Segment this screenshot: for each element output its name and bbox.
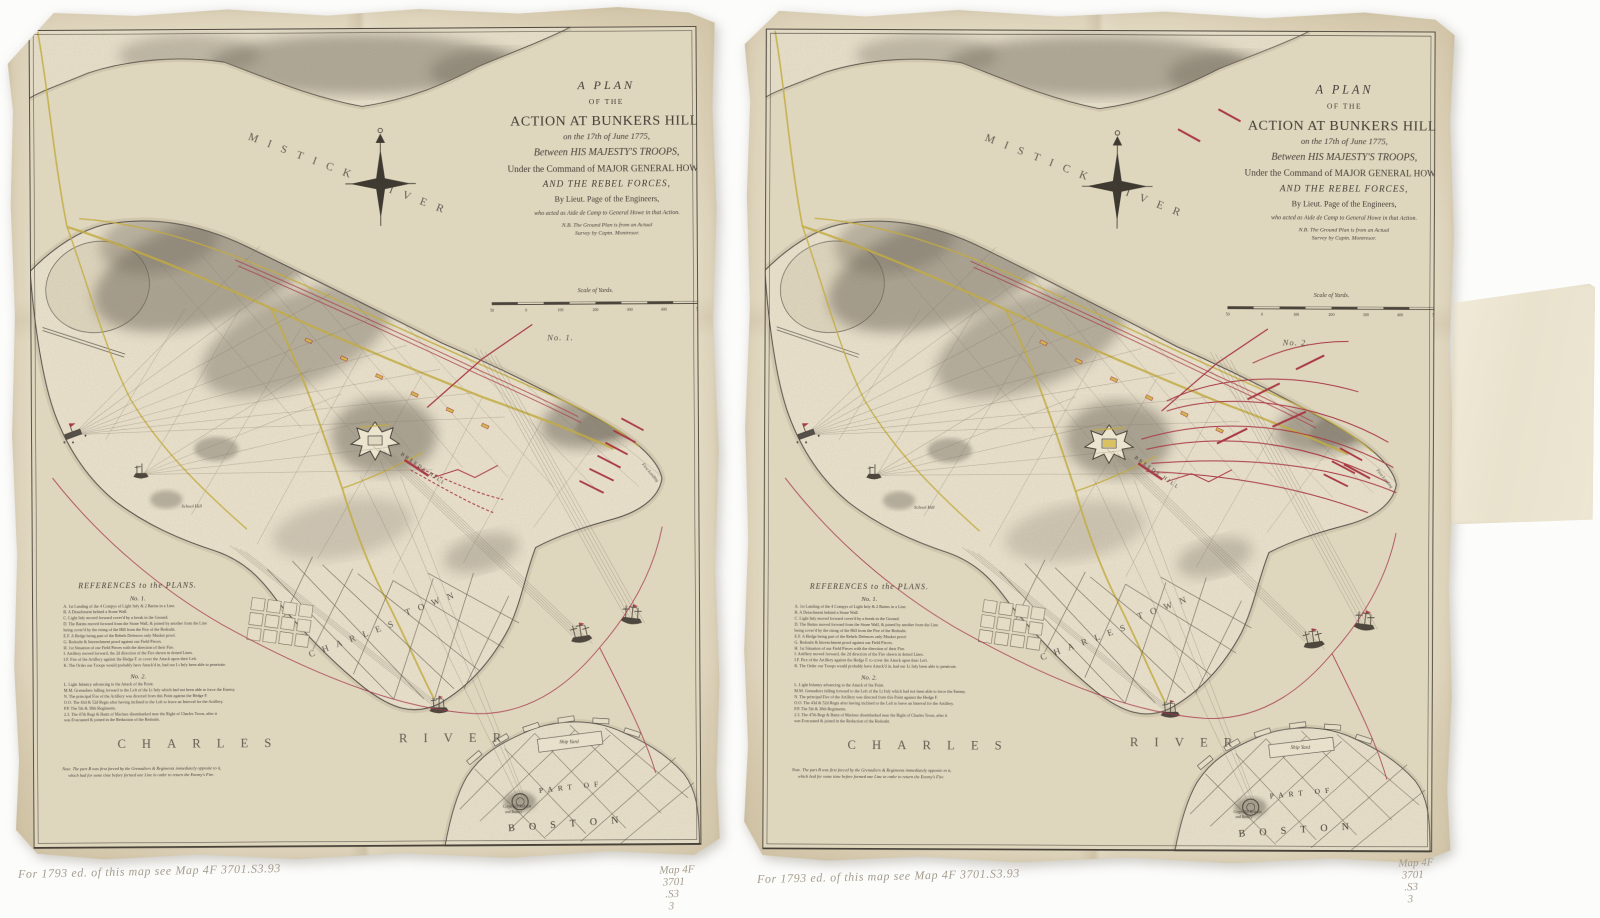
svg-text:100: 100 <box>557 307 563 312</box>
svg-text:0: 0 <box>525 307 527 312</box>
svg-text:200: 200 <box>593 307 599 312</box>
svg-text:A. 1st Landing of the 4 Compys: A. 1st Landing of the 4 Compys of Light … <box>795 604 907 609</box>
references-no1-heading: No. 1. <box>129 595 146 602</box>
map-svg: A PLAN OF THE ACTION AT BUNKERS HILL, on… <box>741 6 1457 867</box>
svg-text:500: 500 <box>1432 313 1438 318</box>
svg-text:P.P. The 5th & 38th Regiments.: P.P. The 5th & 38th Regiments. <box>64 705 116 710</box>
catalog-line: Map 4F <box>1398 856 1434 869</box>
svg-text:50: 50 <box>490 308 494 313</box>
plan-number: No. 2. <box>1282 337 1310 347</box>
svg-text:300: 300 <box>627 307 633 312</box>
references-note-2: which had for some time before formed on… <box>68 772 214 778</box>
svg-text:L. Light Infantry advancing to: L. Light Infantry advancing to the Attac… <box>794 682 884 687</box>
svg-text:H. 1st Situation of our Field: H. 1st Situation of our Field Pieces wit… <box>795 645 906 650</box>
corps-hill-label-1: Corps Hill Redoubt <box>503 805 532 809</box>
title-line: ACTION AT BUNKERS HILL, <box>1248 118 1441 135</box>
charles-river-label-2: RIVER <box>399 731 517 746</box>
title-line: By Lieut. Page of the Engineers, <box>1292 199 1397 208</box>
svg-text:I.F. Fire of the Artillery aga: I.F. Fire of the Artillery against the H… <box>64 656 197 662</box>
map-sheet-plan2: A PLAN OF THE ACTION AT BUNKERS HILL, on… <box>741 6 1457 867</box>
svg-text:500: 500 <box>696 306 702 311</box>
title-line: A PLAN <box>1315 83 1374 97</box>
svg-text:G. Redoubt & Intrenchment proo: G. Redoubt & Intrenchment proof against … <box>795 640 893 645</box>
charles-river-label-1: CHARLES <box>848 738 1018 753</box>
catalog-mark-left: Map 4F 3701 .S3 3 <box>659 863 696 912</box>
svg-text:being cover'd by the rising of: being cover'd by the rising of the Hill … <box>795 628 907 633</box>
title-line: AND THE REBEL FORCES, <box>1279 184 1409 195</box>
map-sheet-plan2-wrap: A PLAN OF THE ACTION AT BUNKERS HILL, on… <box>741 6 1457 867</box>
title-line: N.B. The Ground Plan is from an Actual <box>561 221 653 229</box>
svg-text:300: 300 <box>1363 312 1369 317</box>
catalog-line: Map 4F <box>659 863 695 876</box>
svg-text:O.O. The 43d & 52d Regts after: O.O. The 43d & 52d Regts after having in… <box>794 700 954 706</box>
scale-label: Scale of Yards. <box>1314 292 1350 299</box>
folded-paper-flap <box>1451 282 1596 525</box>
references-no1-heading: No. 1. <box>860 596 877 603</box>
svg-text:O.O. The 43d & 52d Regts after: O.O. The 43d & 52d Regts after having in… <box>64 699 224 705</box>
charles-river-label-2: RIVER <box>1130 735 1249 750</box>
title-line: ACTION AT BUNKERS HILL, <box>510 113 703 130</box>
svg-text:was Evacuated & joined in the: was Evacuated & joined in the Reduction … <box>794 718 890 723</box>
pencil-note-left: For 1793 ed. of this map see Map 4F 3701… <box>18 861 281 882</box>
svg-text:N. The principal Fire of the A: N. The principal Fire of the Artillery w… <box>794 694 938 700</box>
svg-text:200: 200 <box>1328 312 1334 317</box>
references-note-2: which had for some time before formed on… <box>798 774 945 780</box>
svg-text:L. Light Infantry advancing to: L. Light Infantry advancing to the Attac… <box>64 681 154 687</box>
svg-text:G. Redoubt & Intrenchment proo: G. Redoubt & Intrenchment proof against … <box>64 639 162 645</box>
svg-text:100: 100 <box>1293 312 1299 317</box>
title-line: OF THE <box>1327 102 1362 111</box>
title-line: Under the Command of MAJOR GENERAL HOWE, <box>507 163 706 174</box>
map-sheet-plan1: A PLAN OF THE ACTION AT BUNKERS HILL, on… <box>7 4 722 864</box>
title-line: A PLAN <box>576 78 635 92</box>
title-line: N.B. The Ground Plan is from an Actual <box>1298 226 1390 233</box>
title-line: By Lieut. Page of the Engineers, <box>555 194 660 204</box>
title-line: Survey by Captn. Montresor. <box>575 230 639 236</box>
svg-text:P.P. The 5th & 38th Regiments.: P.P. The 5th & 38th Regiments. <box>794 706 846 711</box>
title-line: Under the Command of MAJOR GENERAL HOWE, <box>1245 169 1444 180</box>
svg-text:B. A Detachment behind a Stone: B. A Detachment behind a Stone Wall. <box>795 610 859 615</box>
svg-text:C. Light Infy moved forward co: C. Light Infy moved forward cover'd by a… <box>795 616 900 621</box>
title-line: Survey by Captn. Montresor. <box>1312 236 1376 242</box>
map-svg: A PLAN OF THE ACTION AT BUNKERS HILL, on… <box>7 4 722 864</box>
references-no2-heading: No. 2. <box>129 673 146 680</box>
title-line: AND THE REBEL FORCES, <box>542 178 671 189</box>
svg-text:0: 0 <box>1261 312 1263 317</box>
scale-label: Scale of Yards. <box>578 287 614 294</box>
catalog-line: 3 <box>660 899 696 912</box>
corps-hill-label-2: and Battery <box>505 810 522 814</box>
catalog-mark-right: Map 4F 3701 .S3 3 <box>1398 856 1435 905</box>
svg-text:M.M. Grenadiers falling forwar: M.M. Grenadiers falling forward to the L… <box>64 687 236 693</box>
title-line: Between HIS MAJESTY'S TROOPS, <box>534 147 680 159</box>
svg-text:I.F. Fire of the Artillery aga: I.F. Fire of the Artillery against the H… <box>794 657 927 663</box>
charles-river-label-1: CHARLES <box>117 736 287 751</box>
corps-hill-label-2: and Battery <box>1235 815 1252 819</box>
title-line: on the 17th of June 1775, <box>563 131 650 142</box>
svg-text:was Evacuated & joined in the: was Evacuated & joined in the Reduction … <box>64 717 160 723</box>
svg-text:H. 1st Situation of our Field: H. 1st Situation of our Field Pieces wit… <box>64 644 175 650</box>
svg-text:A. 1st Landing of the 4 Compys: A. 1st Landing of the 4 Compys of Light … <box>63 603 175 609</box>
school-hill-label: School Hill <box>181 503 202 508</box>
title-line: Between HIS MAJESTY'S TROOPS, <box>1271 152 1417 164</box>
photo-background: A PLAN OF THE ACTION AT BUNKERS HILL, on… <box>0 0 1600 918</box>
plan-number: No. 1. <box>546 332 574 342</box>
corps-hill-label-1: Corps Hill Redoubt <box>1234 810 1263 814</box>
svg-text:N. The principal Fire of the A: N. The principal Fire of the Artillery w… <box>64 693 208 699</box>
title-line: who acted as Aide de Camp to General How… <box>534 210 680 217</box>
svg-text:M.M. Grenadiers falling forwar: M.M. Grenadiers falling forward to the L… <box>794 688 966 694</box>
catalog-line: 3 <box>1399 892 1435 905</box>
svg-text:400: 400 <box>661 307 667 312</box>
svg-text:50: 50 <box>1226 312 1230 317</box>
svg-text:400: 400 <box>1397 312 1403 317</box>
references-heading: REFERENCES to the PLANS. <box>77 581 197 591</box>
title-line: on the 17th of June 1775, <box>1301 136 1388 146</box>
references-heading: REFERENCES to the PLANS. <box>809 582 929 592</box>
pencil-note-right: For 1793 ed. of this map see Map 4F 3701… <box>757 866 1020 887</box>
svg-text:C. Light Infy moved forward co: C. Light Infy moved forward cover'd by a… <box>63 615 168 621</box>
svg-text:E.F. A Hedge being part of the: E.F. A Hedge being part of the Rebels De… <box>795 634 907 639</box>
svg-text:B. A Detachment behind a Stone: B. A Detachment behind a Stone Wall. <box>63 609 127 614</box>
map-sheet-plan1-wrap: A PLAN OF THE ACTION AT BUNKERS HILL, on… <box>7 4 722 864</box>
school-hill-label: School Hill <box>914 505 935 510</box>
references-no2-heading: No. 2. <box>860 675 877 682</box>
title-line: who acted as Aide de Camp to General How… <box>1271 215 1417 222</box>
ship-yard-label: Ship Yard <box>1291 746 1311 751</box>
svg-text:being cover'd by the rising of: being cover'd by the rising of the Hill … <box>63 627 175 633</box>
ship-yard-label: Ship Yard <box>559 740 579 745</box>
svg-text:E.F. A Hedge being part of the: E.F. A Hedge being part of the Rebels De… <box>64 633 176 639</box>
title-line: OF THE <box>589 97 624 106</box>
